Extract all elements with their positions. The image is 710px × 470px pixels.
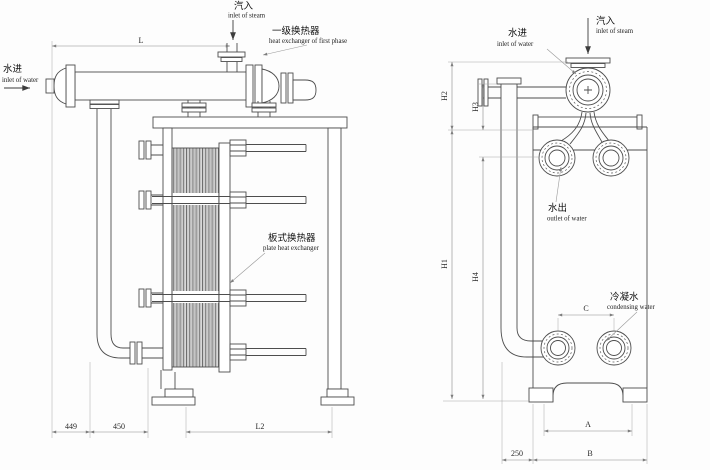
front-water-inlet-label-zh: 水进 xyxy=(3,63,23,75)
first-phase-label-zh: 一级换热器 xyxy=(272,25,320,37)
water-outlet-label-zh: 水出 xyxy=(548,202,567,214)
plate-heat-exchanger xyxy=(139,117,354,405)
side-water-inlet-callout: 水进 inlet of water xyxy=(497,27,576,74)
upper-nozzle-flanges xyxy=(539,140,629,176)
water-outlet-label-en: outlet of water xyxy=(547,216,587,223)
front-water-inlet-callout: 水进 inlet of water xyxy=(2,63,39,88)
water-down-pipe xyxy=(90,100,163,364)
condensing-water-label-zh: 冷凝水 xyxy=(610,291,639,303)
side-steam-inlet-label-zh: 汽入 xyxy=(596,15,616,27)
plate-hx-callout: 板式换热器 plate heat exchanger xyxy=(230,232,320,283)
dim-A: A xyxy=(585,420,591,429)
dim-H4: H4 xyxy=(471,272,480,282)
dim-H1: H1 xyxy=(440,259,449,269)
side-steam-inlet-label-en: inlet of steam xyxy=(596,28,634,35)
condensing-water-label-en: condensing water xyxy=(607,304,655,311)
dim-B: B xyxy=(587,449,592,458)
plate-hx-label-en: plate heat exchanger xyxy=(263,245,320,252)
dim-C: C xyxy=(583,304,588,313)
side-view: 汽入 inlet of steam 水进 inlet of water 水出 o… xyxy=(440,15,655,464)
front-steam-inlet-label-zh: 汽入 xyxy=(234,0,254,12)
first-phase-callout: 一级换热器 heat exchanger of first phase xyxy=(263,25,347,55)
front-view: 汽入 inlet of steam 水进 inlet of water 一级换热… xyxy=(2,0,354,438)
plate-heat-exchanger-drawing: 汽入 inlet of steam 水进 inlet of water 一级换热… xyxy=(0,0,710,470)
dim-H3: H3 xyxy=(471,102,480,112)
dim-449: 449 xyxy=(65,422,77,431)
steam-inlet-flange xyxy=(561,58,610,144)
engineering-drawing-canvas: 汽入 inlet of steam 水进 inlet of water 一级换热… xyxy=(0,0,710,470)
side-water-inlet-label-en: inlet of water xyxy=(497,41,534,48)
front-water-inlet-label-en: inlet of water xyxy=(2,77,39,84)
dim-450: 450 xyxy=(113,422,125,431)
first-phase-leader xyxy=(263,45,307,55)
side-nozzles xyxy=(139,141,163,307)
first-phase-label-en: heat exchanger of first phase xyxy=(269,38,347,45)
first-phase-heat-exchanger xyxy=(46,43,316,117)
dim-L: L xyxy=(139,36,144,45)
dim-250: 250 xyxy=(511,449,523,458)
plate-hx-label-zh: 板式换热器 xyxy=(268,232,316,244)
dim-L2: L2 xyxy=(256,422,265,431)
tie-bolt-nuts xyxy=(230,140,246,360)
dim-H2: H2 xyxy=(440,91,449,101)
support-feet xyxy=(152,370,354,405)
front-steam-inlet-label-en: inlet of steam xyxy=(228,13,266,20)
front-steam-inlet-callout: 汽入 inlet of steam xyxy=(228,0,266,40)
lower-nozzle-flanges xyxy=(541,331,631,365)
side-steam-inlet-callout: 汽入 inlet of steam xyxy=(588,15,634,54)
side-water-inlet-label-zh: 水进 xyxy=(508,27,528,39)
plate-hx-leader xyxy=(230,253,265,283)
